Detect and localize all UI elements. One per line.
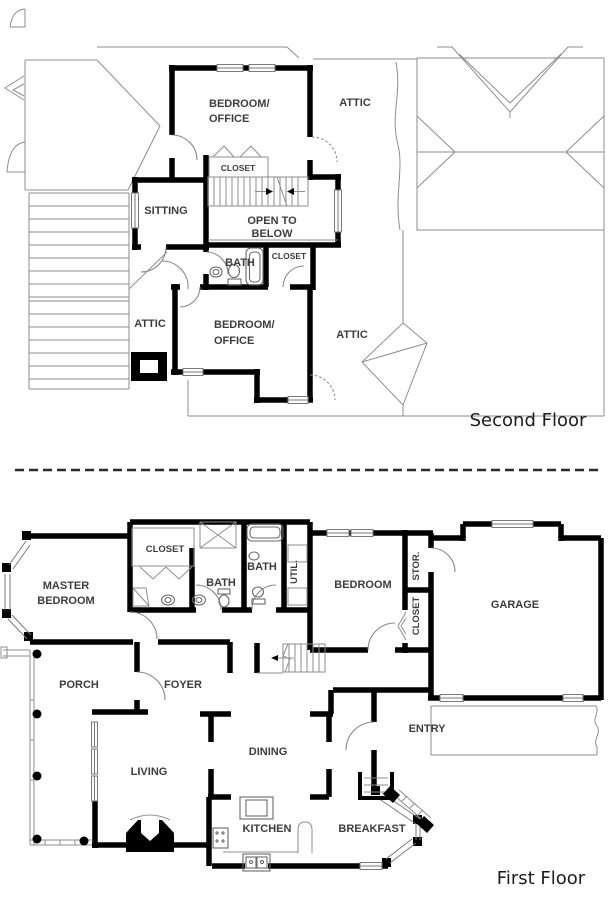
label-bedroom-office-bottom-2: OFFICE [214, 335, 254, 347]
label-sitting: SITTING [144, 205, 187, 217]
bay-corner [22, 531, 31, 540]
floor-plan-svg: BEDROOM/ OFFICE ATTIC CLOSET SITTING OPE… [0, 0, 615, 913]
porch-column [33, 650, 42, 659]
door-arc [346, 722, 374, 750]
first-floor-walls [2, 522, 601, 867]
label-closet-top: CLOSET [221, 163, 256, 173]
door-arc [252, 585, 276, 610]
label-bedroom-office-top: BEDROOM/ [209, 98, 270, 110]
label-closet-mid: CLOSET [272, 251, 307, 261]
second-floor-title: Second Floor [470, 410, 587, 431]
bay-corner [2, 609, 11, 618]
label-master-bedroom-2: BEDROOM [37, 595, 94, 607]
label-breakfast: BREAKFAST [338, 823, 406, 835]
sink [249, 552, 259, 560]
fireplace [126, 815, 174, 852]
door-arc [130, 612, 157, 639]
bay-corner [371, 786, 380, 795]
door-arc [431, 548, 455, 572]
label-bedroom-1f: BEDROOM [334, 579, 391, 591]
label-porch: PORCH [59, 679, 99, 691]
label-util: UTIL. [289, 560, 300, 584]
label-living: LIVING [131, 766, 168, 778]
toilet [218, 589, 230, 594]
label-closet-bedroom: CLOSET [411, 597, 422, 636]
label-kitchen: KITCHEN [243, 823, 292, 835]
porch-column [80, 837, 89, 846]
label-bedroom-office-top-2: OFFICE [209, 113, 249, 125]
label-bedroom-office-bottom: BEDROOM/ [214, 319, 275, 331]
label-attic-top: ATTIC [339, 97, 371, 109]
door-arc [312, 137, 337, 162]
label-stor: STOR. [411, 552, 422, 581]
second-floor-plan: BEDROOM/ OFFICE ATTIC CLOSET SITTING OPE… [5, 9, 604, 431]
door-arc [137, 672, 165, 700]
label-master-bedroom: MASTER [43, 580, 90, 592]
label-open-to-below-2: BELOW [252, 228, 294, 240]
refrigerator [213, 828, 228, 848]
label-attic-right: ATTIC [336, 329, 368, 341]
porch-column [33, 710, 42, 719]
porch-column [33, 772, 42, 781]
sink [210, 267, 222, 277]
label-bath-hall: BATH [247, 561, 277, 573]
bay-corner [382, 858, 391, 867]
label-dining: DINING [249, 746, 288, 758]
label-attic-left: ATTIC [134, 318, 166, 330]
bifold-closet-icon [398, 612, 406, 640]
door-arc [180, 287, 200, 307]
bay-windows-master [5, 541, 31, 639]
door-arc [310, 375, 335, 400]
door-arc [283, 266, 304, 287]
first-floor-plan: MASTER BEDROOM CLOSET BATH BATH UTIL. BE… [1, 521, 601, 890]
stair-arrow-icon [271, 655, 278, 661]
bay-corner [24, 632, 33, 641]
chimney [131, 352, 167, 381]
door-arc [172, 135, 197, 160]
sink [162, 595, 175, 605]
label-bath-2f: BATH [225, 257, 255, 269]
door-arc [141, 247, 166, 272]
label-foyer: FOYER [164, 679, 202, 691]
first-floor-title: First Floor [497, 868, 586, 889]
porch-column [33, 835, 42, 844]
label-closet-1f: CLOSET [146, 544, 185, 555]
floor-plan-page: BEDROOM/ OFFICE ATTIC CLOSET SITTING OPE… [0, 0, 615, 913]
label-entry: ENTRY [409, 723, 447, 735]
label-garage: GARAGE [491, 599, 539, 611]
label-bath-master: BATH [206, 577, 236, 589]
toilet [228, 279, 241, 285]
door-arc [368, 623, 395, 650]
label-open-to-below: OPEN TO [247, 215, 297, 227]
